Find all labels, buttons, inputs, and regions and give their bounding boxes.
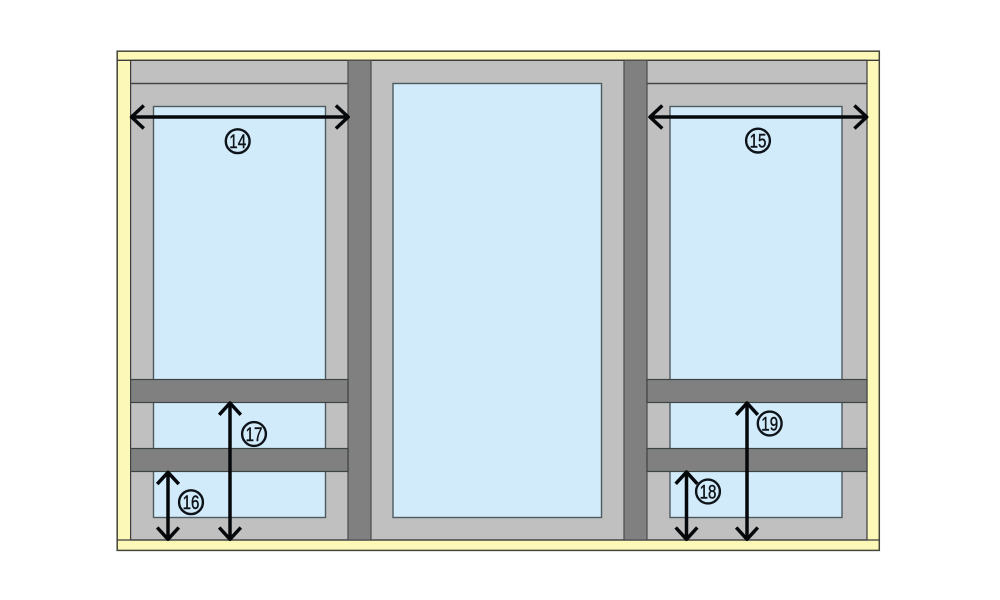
svg-text:17: 17 [246,424,263,446]
svg-text:15: 15 [750,131,767,153]
svg-text:19: 19 [761,413,778,435]
svg-text:18: 18 [700,481,717,503]
svg-text:14: 14 [229,131,246,153]
svg-text:16: 16 [183,492,200,514]
